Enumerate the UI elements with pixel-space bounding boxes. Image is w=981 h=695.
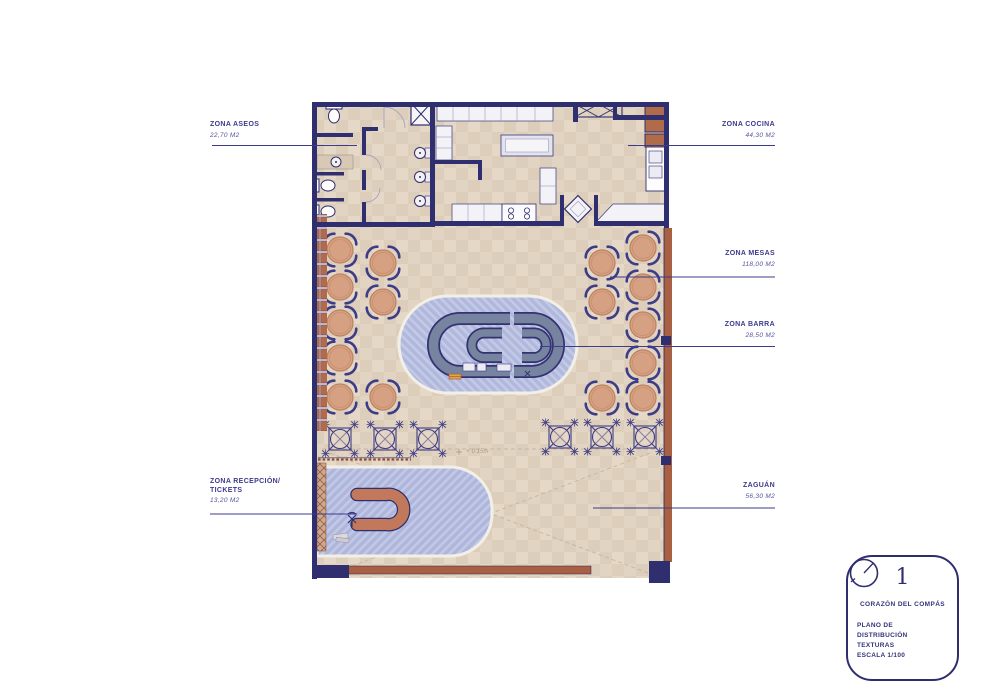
annotation-zona-barra: ZONA BARRA 28,50 M2 xyxy=(575,321,775,339)
round-table xyxy=(365,284,402,321)
terracotta-band-bottom xyxy=(347,566,591,574)
toilet-bowl xyxy=(329,109,340,123)
drawing-title-line2: TEXTURAS xyxy=(857,641,935,651)
round-table xyxy=(584,380,621,417)
round-table xyxy=(322,379,359,416)
zone-title: ZAGUÁN xyxy=(575,482,775,491)
round-table xyxy=(322,232,359,269)
reception-railing xyxy=(318,458,411,460)
drawing-sheet: ZONA ASEOS 22,70 M2 ZONA COCINA 44,30 M2… xyxy=(0,0,981,695)
brick-strip-left xyxy=(317,214,327,431)
reception-zone xyxy=(317,458,492,556)
round-table xyxy=(322,269,359,306)
annotation-zona-recepcion: ZONA RECEPCIÓN/ TICKETS 13,20 M2 xyxy=(210,478,280,504)
annotation-zona-mesas: ZONA MESAS 118,00 M2 xyxy=(575,250,775,268)
zone-title: ZONA ASEOS xyxy=(210,121,259,130)
zone-area: 28,50 M2 xyxy=(575,332,775,339)
zone-title: ZONA MESAS xyxy=(575,250,775,259)
round-table xyxy=(365,245,402,282)
round-table xyxy=(584,284,621,321)
floor-plan-svg xyxy=(0,0,981,695)
zone-area: 56,30 M2 xyxy=(575,493,775,500)
entry-pillar xyxy=(649,561,670,583)
annotation-zona-aseos: ZONA ASEOS 22,70 M2 xyxy=(210,121,259,139)
bar-zone xyxy=(399,296,577,393)
zone-area: 13,20 M2 xyxy=(210,497,280,504)
level-marker-text: + 0'15m xyxy=(466,449,489,455)
reception-side-column xyxy=(317,463,326,551)
zone-area: 118,00 M2 xyxy=(575,261,775,268)
drawing-title: PLANO DE DISTRIBUCIÓN TEXTURAS ESCALA 1/… xyxy=(848,621,935,661)
stove xyxy=(502,204,536,222)
wall-pillar xyxy=(661,456,671,465)
corridor-sinks xyxy=(415,148,432,207)
round-table xyxy=(625,269,662,306)
zone-title-line2: TICKETS xyxy=(210,487,280,496)
annotation-zona-cocina: ZONA COCINA 44,30 M2 xyxy=(575,121,775,139)
drawing-title-line1: PLANO DE DISTRIBUCIÓN xyxy=(857,621,935,641)
zone-title: ZONA BARRA xyxy=(575,321,775,330)
title-block: 1 CORAZÓN DEL COMPÁS PLANO DE DISTRIBUCI… xyxy=(846,555,959,681)
north-compass-icon xyxy=(848,557,880,589)
round-table xyxy=(625,345,662,382)
zone-title: ZONA COCINA xyxy=(575,121,775,130)
round-table xyxy=(625,380,662,417)
round-table xyxy=(365,379,402,416)
drawing-title-line3: ESCALA 1/100 xyxy=(857,651,935,661)
zone-area: 22,70 M2 xyxy=(210,132,259,139)
project-name: CORAZÓN DEL COMPÁS xyxy=(848,601,957,608)
annotation-zaguan: ZAGUÁN 56,30 M2 xyxy=(575,482,775,500)
terracotta-band-right xyxy=(664,228,672,562)
zone-title: ZONA RECEPCIÓN/ xyxy=(210,478,280,487)
round-table xyxy=(322,305,359,342)
round-table xyxy=(322,340,359,377)
zone-area: 44,30 M2 xyxy=(575,132,775,139)
